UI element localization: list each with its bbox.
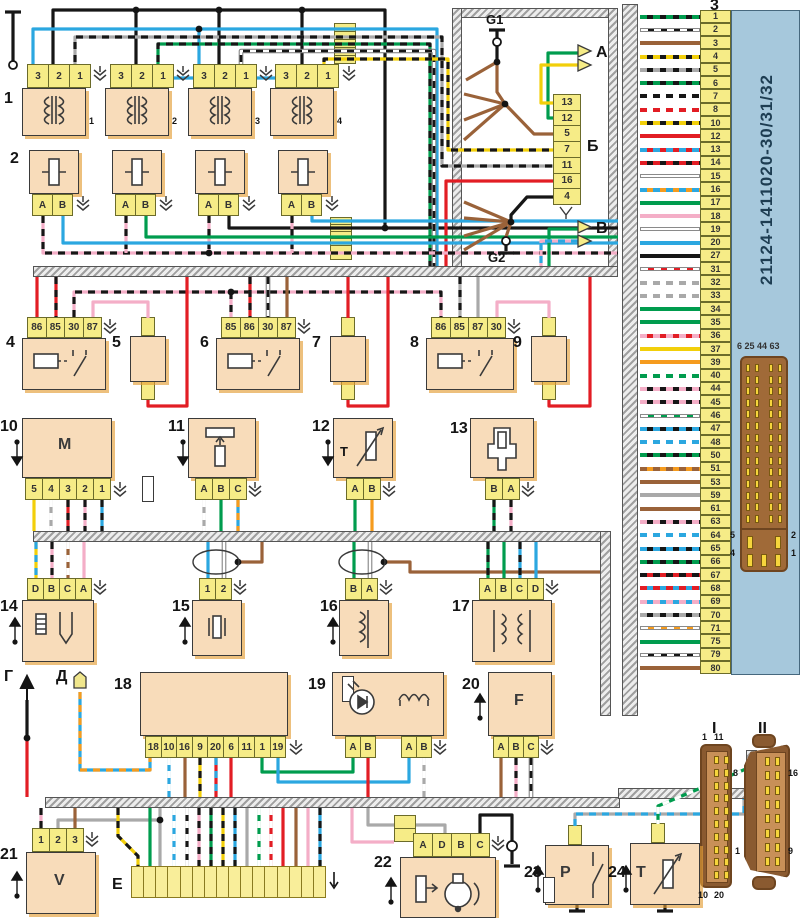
relay-8-pins-pin-86: 86 bbox=[431, 317, 451, 338]
connector-slot bbox=[765, 829, 770, 838]
component-23-pin bbox=[568, 826, 582, 845]
connector-slot bbox=[746, 503, 750, 511]
connector-slot bbox=[724, 807, 729, 815]
wire bbox=[466, 62, 497, 80]
wire bbox=[505, 104, 553, 134]
connector-slot bbox=[769, 387, 773, 395]
f-label: F bbox=[514, 692, 524, 710]
direction-arrow-icon bbox=[12, 439, 22, 465]
component-18-pins-pin-19: 19 bbox=[270, 736, 287, 758]
ecu-pin-row: 50 bbox=[640, 449, 732, 462]
connector-i-corner: 10 bbox=[698, 890, 708, 900]
ecu-pin-row: 79 bbox=[640, 648, 732, 661]
ecu-pin-row: 3 bbox=[640, 37, 732, 50]
connector-slot bbox=[769, 492, 773, 500]
connector-slot bbox=[755, 387, 759, 395]
connector-i-corner: 11 bbox=[714, 732, 724, 742]
inline-connector-top bbox=[334, 24, 356, 64]
wire bbox=[464, 202, 511, 222]
injector-1-pins-pin-B: B bbox=[52, 194, 73, 216]
ecu-pin-wire bbox=[640, 294, 700, 298]
potentiometer-icon bbox=[200, 424, 240, 470]
ecu-pin-row: 67 bbox=[640, 568, 732, 581]
ecu-pin-number: 51 bbox=[700, 462, 731, 475]
coil-2-pins-pin-3: 3 bbox=[110, 64, 132, 88]
junction-dot bbox=[235, 559, 242, 566]
connector-slot bbox=[778, 515, 782, 523]
connector-slot bbox=[724, 794, 729, 802]
connector-b-pins: 13125711164 bbox=[553, 95, 581, 205]
component-10-pins-pin-2: 2 bbox=[76, 478, 94, 500]
connector-slot bbox=[769, 468, 773, 476]
connector-slot bbox=[778, 503, 782, 511]
connector-slot bbox=[724, 756, 729, 764]
coil-1-pins-pin-1: 1 bbox=[69, 64, 91, 88]
connector-slot bbox=[746, 399, 750, 407]
component-21-pins: 123 bbox=[33, 828, 84, 852]
ecu-pin-number: 13 bbox=[700, 142, 731, 155]
terminal-circle bbox=[9, 61, 17, 69]
coil-icon bbox=[392, 682, 436, 710]
transformer-icon bbox=[282, 92, 322, 130]
ecu-pin-number: 35 bbox=[700, 315, 731, 328]
connector-slot bbox=[755, 457, 759, 465]
coil-3-pins-pin-3: 3 bbox=[193, 64, 215, 88]
component-20-label: 20 bbox=[462, 676, 480, 694]
component-11-pins-pin-B: B bbox=[212, 478, 230, 500]
ecu-pin-wire bbox=[640, 560, 700, 564]
ecu-pin-wire bbox=[640, 480, 700, 484]
injector-icon bbox=[208, 156, 232, 188]
component-11-label: 11 bbox=[168, 418, 185, 436]
ecu-pin-row: 64 bbox=[640, 529, 732, 542]
transformer-icon bbox=[117, 92, 157, 130]
ecu-pin-number: 19 bbox=[700, 222, 731, 235]
ecu-pin-wire bbox=[640, 374, 700, 378]
connector-slot bbox=[775, 786, 780, 795]
junction-dot bbox=[206, 250, 213, 257]
ecu-pin-number: 31 bbox=[700, 262, 731, 275]
fuse-9-stem-bottom-cell bbox=[542, 381, 556, 400]
wire bbox=[74, 292, 441, 317]
plug-icon bbox=[482, 424, 522, 474]
direction-arrow-icon bbox=[328, 618, 338, 645]
relay-icon bbox=[434, 344, 506, 384]
connector-ii-corner: 1 bbox=[735, 846, 740, 856]
wire bbox=[541, 241, 578, 266]
connector-slot bbox=[755, 399, 759, 407]
connector-slot bbox=[769, 364, 773, 372]
ecu-pin-number: 32 bbox=[700, 275, 731, 288]
component-22-label: 22 bbox=[374, 854, 392, 872]
relay-8-pins: 86858730 bbox=[432, 317, 506, 338]
shield-bus-right bbox=[622, 4, 638, 716]
e-arrow-icon bbox=[330, 872, 338, 888]
ecu-pin-row: 65 bbox=[640, 542, 732, 555]
ecu-pin-number: 10 bbox=[700, 116, 731, 129]
ecu-pin-wire bbox=[640, 334, 700, 338]
connector-slot bbox=[778, 468, 782, 476]
connector-slot bbox=[765, 857, 770, 866]
fuse-5-label: 5 bbox=[112, 334, 121, 352]
component-14-pins-pin-B: B bbox=[43, 578, 60, 600]
component-21-pins-pin-3: 3 bbox=[66, 828, 84, 852]
ecu-pin-wire bbox=[640, 241, 700, 245]
ecu-pin-number: 65 bbox=[700, 541, 731, 554]
ecu-pin-wire bbox=[640, 254, 700, 258]
connector-slot bbox=[775, 554, 781, 567]
ecu-pin-number: 75 bbox=[700, 634, 731, 647]
component-19-pins-left-pin-A: A bbox=[345, 736, 361, 758]
inline-connector-fuel-cell bbox=[394, 815, 416, 829]
connector-slot bbox=[775, 857, 780, 866]
ecu-top-label: 3 bbox=[710, 0, 719, 15]
ecu-pin-wire bbox=[640, 94, 700, 98]
component-23-label: 23 bbox=[524, 864, 542, 882]
ecu-pin-number: 4 bbox=[700, 49, 731, 62]
component-8-label: 8 bbox=[410, 334, 419, 352]
ecu-pin-row: 45 bbox=[640, 396, 732, 409]
g-label: Г bbox=[4, 668, 13, 686]
ecu-pin-row: 17 bbox=[640, 196, 732, 209]
ground-icon bbox=[380, 580, 392, 594]
connector-slot bbox=[755, 364, 759, 372]
junction-dot bbox=[216, 7, 223, 14]
connector-b-pins-pin-4: 4 bbox=[553, 188, 581, 205]
direction-arrow-icon bbox=[10, 618, 20, 645]
component-21-pins-pin-1: 1 bbox=[32, 828, 50, 852]
ecu-pin-number: 53 bbox=[700, 475, 731, 488]
led-icon bbox=[340, 678, 384, 720]
ecu-pin-row: 18 bbox=[640, 209, 732, 222]
coil-1-pins-pin-3: 3 bbox=[27, 64, 49, 88]
connector-slot bbox=[765, 757, 770, 766]
connector-slot bbox=[714, 794, 719, 802]
connector-slot bbox=[714, 833, 719, 841]
component-22-pins-pin-B: B bbox=[451, 833, 471, 857]
wire bbox=[464, 218, 511, 222]
ground-icon bbox=[326, 196, 338, 210]
connector-slot bbox=[778, 387, 782, 395]
ecu-pin-number: 67 bbox=[700, 568, 731, 581]
connector-slot bbox=[714, 756, 719, 764]
ecu-pin-number: 20 bbox=[700, 236, 731, 249]
component-18-pins-pin-6: 6 bbox=[223, 736, 240, 758]
wire bbox=[324, 59, 553, 150]
ecu-pin-row: 6 bbox=[640, 76, 732, 89]
component-12-label: 12 bbox=[312, 418, 330, 436]
component-16-pins: BA bbox=[346, 578, 378, 600]
wire bbox=[464, 104, 505, 120]
ecu-pin-row: 80 bbox=[640, 662, 732, 675]
wire bbox=[312, 216, 618, 221]
connector-i-inner bbox=[706, 751, 728, 883]
component-10-pins-pin-1: 1 bbox=[93, 478, 111, 500]
relay-icon bbox=[30, 344, 98, 384]
component-1-label: 1 bbox=[4, 90, 13, 108]
component-15-pins-pin-1: 1 bbox=[199, 578, 216, 600]
connector-ii-corner: 16 bbox=[788, 768, 798, 778]
wire bbox=[541, 241, 578, 266]
fuse-9-stem-bottom bbox=[542, 382, 556, 400]
ecu-pin-row: 61 bbox=[640, 502, 732, 515]
ecu-pin-wire bbox=[640, 440, 700, 444]
junction-dot bbox=[508, 219, 515, 226]
ecu-pin-wire bbox=[640, 28, 700, 32]
wire bbox=[278, 758, 409, 782]
ecu-pin-number: 59 bbox=[700, 488, 731, 501]
ground-icon bbox=[234, 580, 246, 594]
junction-dot bbox=[494, 59, 501, 66]
ecu-pin-number: 36 bbox=[700, 329, 731, 342]
ecu-pin-row: 2 bbox=[640, 23, 732, 36]
ground-icon bbox=[104, 319, 116, 333]
ecu-pin-row: 68 bbox=[640, 582, 732, 595]
connector-slot bbox=[714, 807, 719, 815]
ecu-pin-row: 46 bbox=[640, 409, 732, 422]
coil-3-pins-pin-2: 2 bbox=[214, 64, 236, 88]
connector-slot bbox=[769, 445, 773, 453]
wire bbox=[118, 808, 138, 866]
ecu-pin-wire bbox=[640, 387, 700, 391]
connector-b-pins-pin-11: 11 bbox=[553, 157, 581, 174]
g2-label: G2 bbox=[488, 250, 505, 265]
fuel-pump-icon bbox=[408, 866, 486, 914]
coil-4-pins: 321 bbox=[276, 64, 339, 88]
component-10-pins-pin-3: 3 bbox=[59, 478, 77, 500]
connector-slot bbox=[769, 515, 773, 523]
ecu-pin-number: 40 bbox=[700, 369, 731, 382]
ground-icon bbox=[383, 482, 395, 496]
injector-4-pins: AB bbox=[282, 194, 322, 216]
connector-slot bbox=[755, 468, 759, 476]
ecu-pin-wire bbox=[640, 281, 700, 285]
component-24-pin-cell bbox=[651, 823, 665, 843]
junction-dot bbox=[133, 7, 140, 14]
junction-dot bbox=[381, 559, 388, 566]
junction-dot bbox=[299, 7, 306, 14]
direction-arrow-icon bbox=[180, 618, 190, 645]
relay-4-pins-pin-85: 85 bbox=[46, 317, 66, 338]
connector-b-pins-pin-13: 13 bbox=[553, 94, 581, 111]
ecu-pin-number: 6 bbox=[700, 76, 731, 89]
ecu-pin-number: 80 bbox=[700, 661, 731, 674]
connector-v-label: В bbox=[596, 220, 608, 238]
component-16-label: 16 bbox=[320, 598, 338, 616]
connector-slot bbox=[724, 833, 729, 841]
wire bbox=[464, 222, 511, 236]
connector-slot bbox=[775, 771, 780, 780]
inline-connector-mid-cell bbox=[330, 252, 352, 260]
coil-4-pins-pin-1: 1 bbox=[317, 64, 339, 88]
injector-1-pins-pin-A: A bbox=[32, 194, 53, 216]
ecu-pin-number: 64 bbox=[700, 528, 731, 541]
ecu-pin-row: 44 bbox=[640, 382, 732, 395]
e-label: Е bbox=[112, 876, 123, 894]
ground-icon bbox=[343, 66, 355, 80]
wire bbox=[464, 94, 505, 104]
fuse-5-element bbox=[142, 476, 154, 502]
terminal-circle bbox=[507, 841, 517, 851]
fuse-5-stem-top-cell bbox=[141, 317, 155, 336]
ecu-pin-wire bbox=[640, 55, 700, 59]
component-18-label: 18 bbox=[114, 676, 132, 694]
ecu-pin-number: 69 bbox=[700, 595, 731, 608]
coil-unit-number: 2 bbox=[172, 116, 177, 126]
ecu-pin-wire bbox=[640, 81, 700, 85]
fuse-5 bbox=[130, 336, 166, 382]
ecu-pin-number: 2 bbox=[700, 23, 731, 36]
ecu-pin-wire bbox=[640, 267, 700, 271]
connector-slot bbox=[746, 410, 750, 418]
connector-slot bbox=[765, 814, 770, 823]
coil-3-pins-pin-1: 1 bbox=[235, 64, 257, 88]
v-label: V bbox=[54, 872, 65, 890]
component-15-pins-pin-2: 2 bbox=[215, 578, 232, 600]
component-19-label: 19 bbox=[308, 676, 326, 694]
connector-b-pins-pin-16: 16 bbox=[553, 173, 581, 190]
connector-slot bbox=[746, 364, 750, 372]
fuse-9-stem-top bbox=[542, 318, 556, 336]
fork-icon bbox=[560, 207, 572, 219]
component-18-pins-pin-9: 9 bbox=[192, 736, 209, 758]
component-17-label: 17 bbox=[452, 598, 470, 616]
ground-icon bbox=[86, 832, 98, 846]
connector-ii-tab-bottom bbox=[752, 876, 776, 890]
component-13-pins: BA bbox=[486, 478, 520, 500]
fuse-9-stem-top-cell bbox=[542, 317, 556, 336]
connector-slot bbox=[755, 410, 759, 418]
ecu-pin-wire bbox=[640, 520, 700, 524]
injector-icon bbox=[42, 156, 66, 188]
shield-bus-2-arm bbox=[600, 531, 611, 716]
connector-ii-inner bbox=[756, 752, 786, 872]
relay-8-pins-pin-87: 87 bbox=[468, 317, 488, 338]
connector-slot bbox=[755, 503, 759, 511]
component-17-pins-pin-B: B bbox=[495, 578, 512, 600]
oxygen-sensor-icon bbox=[28, 608, 86, 656]
ecu-pin-number: 68 bbox=[700, 581, 731, 594]
ecu-pin-wire bbox=[640, 493, 700, 497]
fuse-9-element bbox=[543, 877, 555, 903]
component-19-pins-left: AB bbox=[346, 736, 376, 758]
relay-4-pins-pin-86: 86 bbox=[27, 317, 47, 338]
fuse-7-label: 7 bbox=[312, 334, 321, 352]
connector-slot bbox=[778, 457, 782, 465]
ecu-pin-wire bbox=[640, 613, 700, 617]
ecu-pin-number: 8 bbox=[700, 103, 731, 116]
connector-slot bbox=[769, 410, 773, 418]
connector-slot bbox=[746, 387, 750, 395]
ecu-pin-row: 69 bbox=[640, 595, 732, 608]
connector-slot bbox=[765, 800, 770, 809]
connector-slot bbox=[778, 422, 782, 430]
ecu-pin-row: 71 bbox=[640, 622, 732, 635]
component-20-pins-pin-C: C bbox=[523, 736, 539, 758]
coil-3-pins: 321 bbox=[194, 64, 257, 88]
connector-slot bbox=[765, 843, 770, 852]
wire bbox=[384, 562, 600, 572]
ecu-pin-number: 66 bbox=[700, 555, 731, 568]
connector-slot bbox=[775, 536, 781, 549]
ecu-pin-row: 8 bbox=[640, 103, 732, 116]
fuse-7-stem-top-cell bbox=[341, 317, 355, 336]
connector-slot bbox=[775, 843, 780, 852]
component-10-pins-pin-4: 4 bbox=[42, 478, 60, 500]
wire bbox=[262, 758, 353, 772]
injector-3-pins-pin-A: A bbox=[198, 194, 219, 216]
ecu-pin-row: 4 bbox=[640, 50, 732, 63]
wire bbox=[368, 808, 394, 825]
connector-slot bbox=[769, 422, 773, 430]
injector-2-pins: AB bbox=[116, 194, 156, 216]
ecu-pin-number: 50 bbox=[700, 448, 731, 461]
ecu-connector-side-label: 4 bbox=[730, 548, 735, 558]
component-10-label: 10 bbox=[0, 418, 18, 436]
ecu-pin-number: 48 bbox=[700, 435, 731, 448]
coil-unit-number: 1 bbox=[89, 116, 94, 126]
connector-slot bbox=[775, 757, 780, 766]
component-22-pins-pin-A: A bbox=[413, 833, 433, 857]
ground-icon bbox=[94, 580, 106, 594]
connector-v-icon bbox=[578, 221, 591, 247]
ground-icon bbox=[290, 740, 302, 754]
connector-ii-title: II bbox=[758, 720, 767, 738]
ecu-pin-number: 14 bbox=[700, 156, 731, 169]
ecu-part-number: 21124-1411020-30/31/32 bbox=[737, 20, 797, 340]
wire bbox=[324, 59, 553, 150]
ecu-pin-wire bbox=[640, 174, 700, 178]
component-20-pins: ABC bbox=[494, 736, 539, 758]
t-label: T bbox=[340, 444, 348, 459]
component-13-pins-pin-A: A bbox=[502, 478, 520, 500]
diagnostic-strip-e bbox=[132, 866, 326, 898]
ecu-pin-wire bbox=[640, 188, 700, 192]
p-label: P bbox=[560, 864, 571, 882]
ground-icon bbox=[546, 580, 558, 594]
component-18-pins-pin-11: 11 bbox=[238, 736, 255, 758]
connector-slot bbox=[714, 769, 719, 777]
ecu-pin-number: 44 bbox=[700, 382, 731, 395]
junction-dot bbox=[196, 26, 203, 33]
ecu-pin-row: 35 bbox=[640, 316, 732, 329]
e-strip-cell bbox=[313, 866, 326, 898]
stepper-coils-icon bbox=[482, 606, 542, 656]
component-21-pins-pin-2: 2 bbox=[49, 828, 67, 852]
ecu-pin-wire bbox=[640, 320, 700, 324]
component-18-pins-pin-16: 16 bbox=[176, 736, 193, 758]
component-23-pin-cell bbox=[568, 825, 582, 845]
ground-icon bbox=[94, 66, 106, 80]
ground-icon bbox=[160, 196, 172, 210]
wire bbox=[497, 62, 505, 104]
shield-bus-3 bbox=[45, 797, 620, 808]
connector-b-pins-pin-12: 12 bbox=[553, 110, 581, 127]
connector-slot bbox=[714, 871, 719, 879]
connector-slot bbox=[769, 457, 773, 465]
terminal-circle bbox=[493, 38, 501, 46]
ecu-harness-connector bbox=[740, 356, 788, 572]
ecu-pin-wire bbox=[640, 626, 700, 630]
connector-slot bbox=[769, 480, 773, 488]
relay-4-pins: 86853087 bbox=[28, 317, 102, 338]
connector-ii-corner: 8 bbox=[733, 768, 738, 778]
component-19-pins-left-pin-B: B bbox=[360, 736, 376, 758]
ground-icon bbox=[114, 482, 126, 496]
transformer-icon bbox=[200, 92, 240, 130]
ecu-pin-number: 12 bbox=[700, 129, 731, 142]
shield-bus-3-ext bbox=[618, 788, 758, 799]
